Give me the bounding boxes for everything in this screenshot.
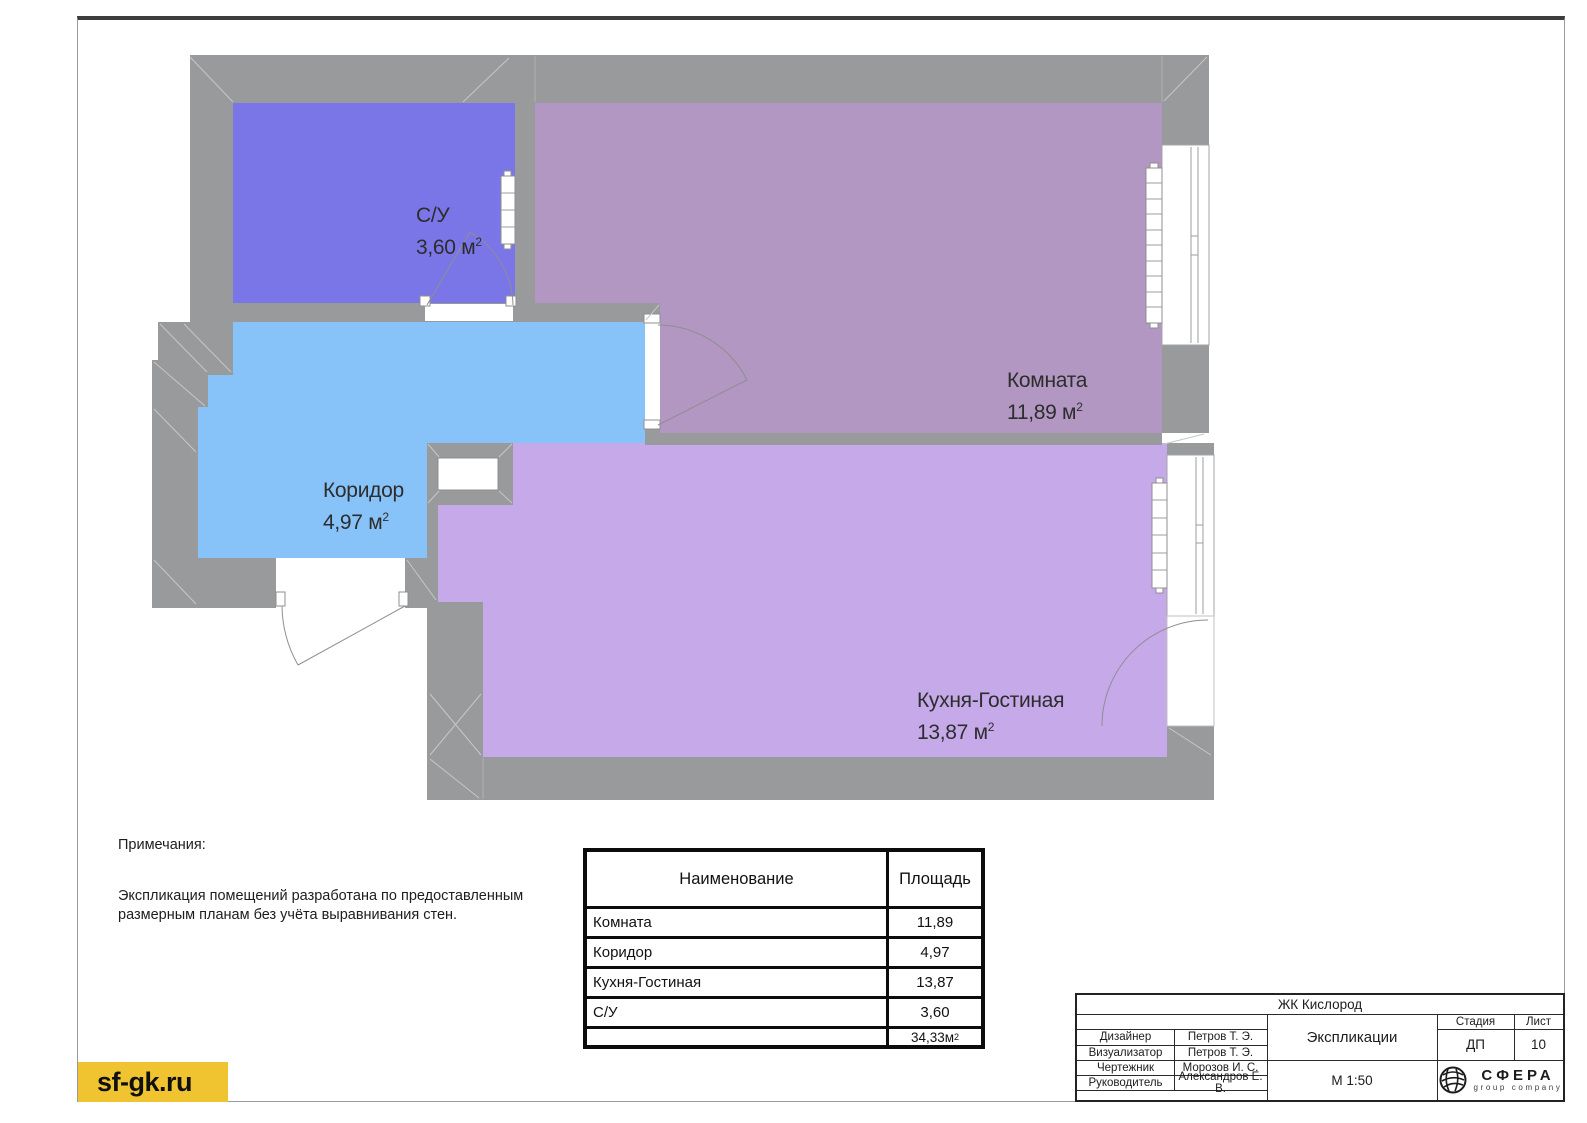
role-label: Руководитель (1077, 1075, 1174, 1090)
total-empty-cell (587, 1029, 886, 1045)
table-header-row: Наименование Площадь (587, 852, 981, 909)
role-name: Петров Т. Э. (1174, 1045, 1267, 1060)
room-area: 3,60 м2 (416, 229, 482, 261)
komnata-radiator (1146, 163, 1162, 328)
notes-line: Экспликация помещений разработана по пре… (118, 887, 523, 906)
logo-brand: СФЕРА (1474, 1069, 1563, 1083)
doc-title: Экспликации (1267, 1014, 1437, 1060)
role-name: Петров Т. Э. (1174, 1029, 1267, 1045)
notes-line: размерным планам без учёта выравнивания … (118, 906, 523, 925)
table-total-row: 34,33 м2 (587, 1029, 981, 1045)
role-label: Визуализатор (1077, 1045, 1174, 1060)
site-badge: sf-gk.ru (78, 1062, 228, 1102)
table-row: С/У 3,60 (587, 999, 981, 1029)
explication-table: Наименование Площадь Комната 11,89 Корид… (583, 848, 985, 1049)
kuhnya-window (1167, 455, 1214, 616)
room-name: Коридор (323, 478, 404, 504)
row-area: 4,97 (886, 939, 981, 966)
table-header-name: Наименование (587, 852, 886, 906)
room-fills (198, 103, 1167, 757)
role-name: Александров Е. В. (1174, 1075, 1267, 1090)
room-name: Кухня-Гостиная (917, 688, 1064, 714)
room-label-koridor: Коридор 4,97 м2 (323, 478, 404, 536)
site-url: sf-gk.ru (78, 1067, 192, 1098)
kuhnya-radiator (1152, 478, 1167, 593)
sy-radiator (501, 171, 515, 249)
title-block: ЖК Кислород Дизайнер Петров Т. Э. Визуал… (1075, 993, 1565, 1102)
stage-value: ДП (1437, 1029, 1514, 1060)
row-name: Комната (587, 909, 886, 936)
room-name: С/У (416, 203, 482, 229)
sy-door-opening (425, 304, 513, 321)
row-name: С/У (587, 999, 886, 1026)
role-label: Дизайнер (1077, 1029, 1174, 1045)
room-label-sy: С/У 3,60 м2 (416, 203, 482, 261)
table-row: Комната 11,89 (587, 909, 981, 939)
row-name: Коридор (587, 939, 886, 966)
table-row: Кухня-Гостиная 13,87 (587, 969, 981, 999)
room-fill-koridor-upper (198, 322, 645, 443)
logo-tagline: group company (1474, 1083, 1563, 1092)
room-label-kuhnya: Кухня-Гостиная 13,87 м2 (917, 688, 1064, 746)
row-name: Кухня-Гостиная (587, 969, 886, 996)
scale: М 1:50 (1267, 1060, 1437, 1100)
room-area: 11,89 м2 (1007, 394, 1087, 426)
balcony-door-opening (1167, 616, 1214, 726)
notes-title: Примечания: (118, 836, 523, 855)
row-area: 11,89 (886, 909, 981, 936)
sheet-value: 10 (1514, 1029, 1563, 1060)
shaft-inner (438, 458, 498, 490)
room-label-komnata: Комната 11,89 м2 (1007, 368, 1087, 426)
role-label: Чертежник (1077, 1060, 1174, 1075)
table-row: Коридор 4,97 (587, 939, 981, 969)
entrance-door-swing (282, 606, 405, 665)
row-area: 13,87 (886, 969, 981, 996)
room-name: Комната (1007, 368, 1087, 394)
project-name: ЖК Кислород (1077, 995, 1563, 1014)
sheet-label: Лист (1514, 1014, 1563, 1029)
company-logo: СФЕРА group company (1437, 1060, 1563, 1100)
room-area: 13,87 м2 (917, 714, 1064, 746)
table-header-area: Площадь (886, 852, 981, 906)
total-area: 34,33 м2 (886, 1029, 981, 1045)
room-area: 4,97 м2 (323, 504, 404, 536)
notes-block: Примечания: Экспликация помещений разраб… (118, 836, 523, 925)
row-area: 3,60 (886, 999, 981, 1026)
stage-label: Стадия (1437, 1014, 1514, 1029)
sphere-logo-icon (1438, 1065, 1468, 1095)
komnata-window (1162, 145, 1209, 345)
komnata-door-opening (645, 322, 660, 425)
drawing-sheet: С/У 3,60 м2 Комната 11,89 м2 Коридор 4,9… (0, 0, 1587, 1123)
